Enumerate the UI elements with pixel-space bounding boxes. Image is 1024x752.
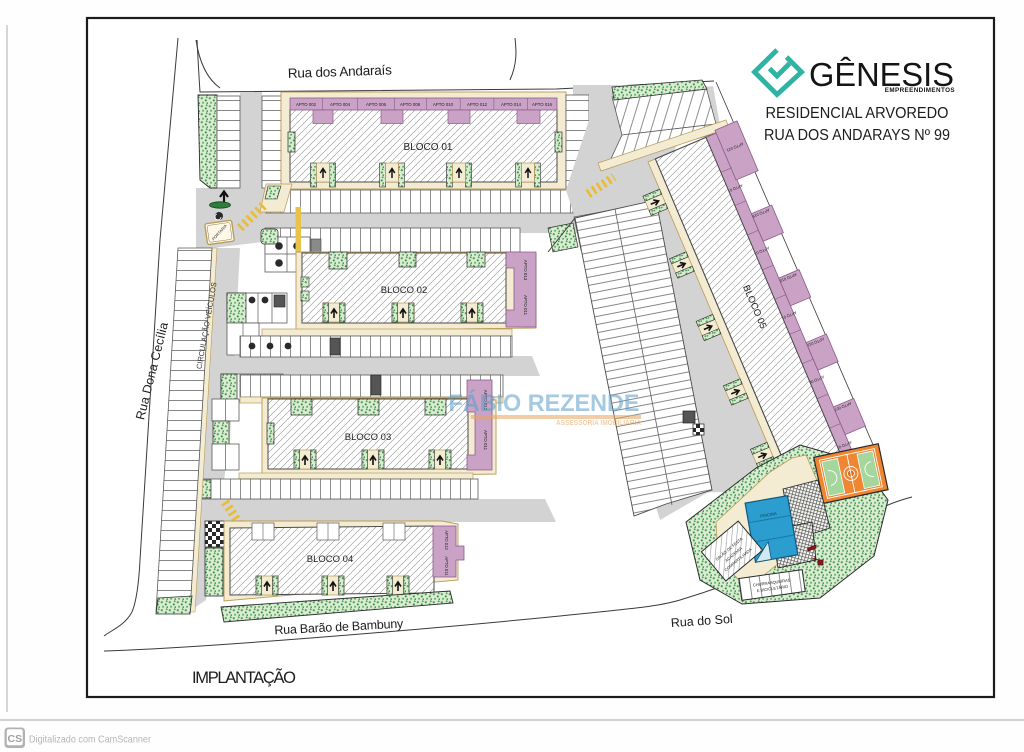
svg-text:RUA DOS ANDARAYS Nº 99: RUA DOS ANDARAYS Nº 99 bbox=[764, 127, 950, 144]
svg-text:APTO 011: APTO 011 bbox=[483, 430, 488, 451]
svg-text:BLOCO 04: BLOCO 04 bbox=[307, 554, 353, 565]
svg-text:APTO 012: APTO 012 bbox=[467, 102, 488, 107]
svg-text:APTO 008: APTO 008 bbox=[400, 102, 421, 107]
svg-text:ASSESSORIA IMOBILIÁRIA: ASSESSORIA IMOBILIÁRIA bbox=[556, 418, 641, 427]
svg-text:APTO 013: APTO 013 bbox=[523, 260, 528, 281]
svg-text:FÁBIO REZENDE: FÁBIO REZENDE bbox=[449, 389, 640, 417]
svg-text:APTO 014: APTO 014 bbox=[501, 102, 522, 107]
svg-text:APTO 011: APTO 011 bbox=[523, 295, 528, 316]
svg-text:CS: CS bbox=[8, 733, 23, 745]
svg-text:APTO 010: APTO 010 bbox=[433, 102, 454, 107]
svg-text:APTO 013: APTO 013 bbox=[444, 530, 449, 550]
svg-text:IMPLANTAÇÃO: IMPLANTAÇÃO bbox=[192, 667, 296, 687]
svg-text:EMPREENDIMENTOS: EMPREENDIMENTOS bbox=[885, 87, 955, 94]
svg-text:APTO 004: APTO 004 bbox=[330, 102, 351, 107]
svg-text:APTO 016: APTO 016 bbox=[532, 102, 553, 107]
svg-text:BLOCO 02: BLOCO 02 bbox=[381, 285, 427, 296]
svg-text:APTO 011: APTO 011 bbox=[444, 556, 449, 576]
svg-text:BLOCO 03: BLOCO 03 bbox=[345, 432, 391, 443]
svg-text:RESIDENCIAL ARVOREDO: RESIDENCIAL ARVOREDO bbox=[766, 105, 949, 122]
svg-text:APTO 006: APTO 006 bbox=[366, 102, 387, 107]
svg-text:Digitalizado com CamScanner: Digitalizado com CamScanner bbox=[29, 734, 151, 746]
svg-text:APTO 002: APTO 002 bbox=[296, 102, 317, 107]
svg-text:BLOCO 01: BLOCO 01 bbox=[404, 142, 453, 153]
